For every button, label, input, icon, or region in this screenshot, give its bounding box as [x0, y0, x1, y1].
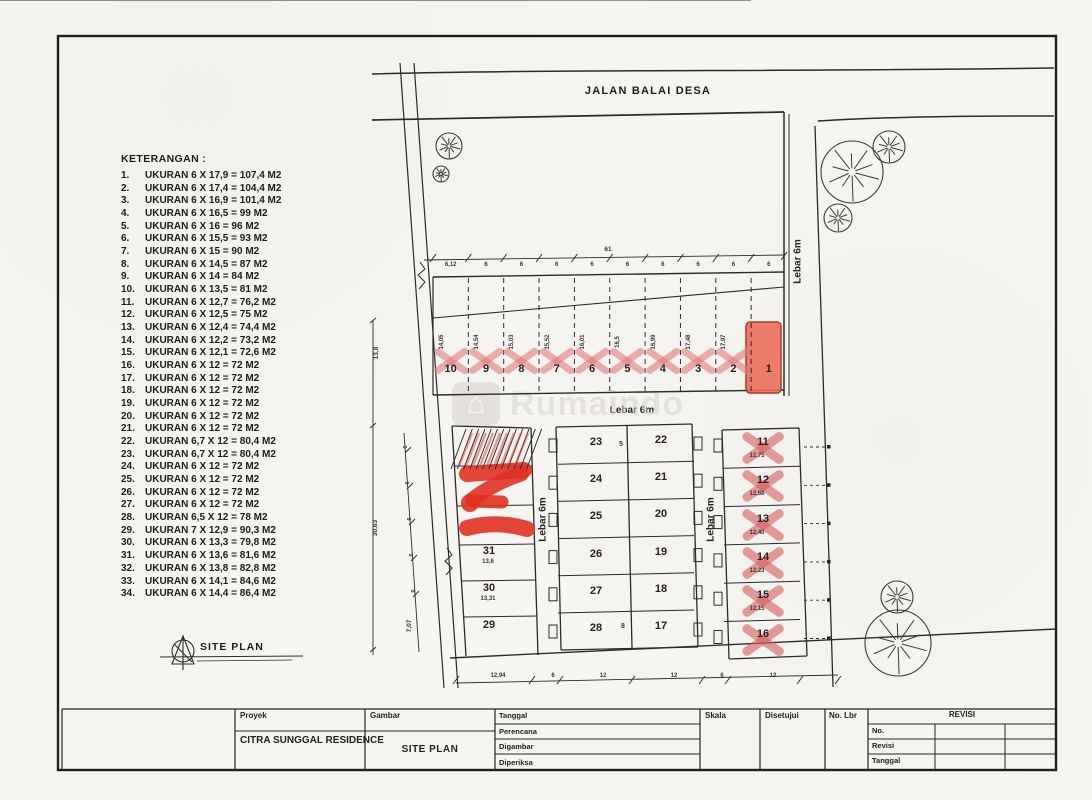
revisi-no-label: No. [872, 726, 884, 735]
legend-item: 22.UKURAN 6,7 X 12 = 80,4 M2 [121, 436, 281, 449]
legend-item: 25.UKURAN 6 X 12 = 72 M2 [121, 474, 281, 487]
legend-item: 33.UKURAN 6 X 14,1 = 84,6 M2 [121, 576, 281, 589]
legend-title: KETERANGAN : [121, 153, 281, 165]
legend-item: 34.UKURAN 6 X 14,4 = 86,4 M2 [121, 588, 281, 601]
legend-item: 28.UKURAN 6,5 X 12 = 78 M2 [121, 512, 281, 525]
legend-item: 8.UKURAN 6 X 14,5 = 87 M2 [121, 259, 281, 272]
legend-item: 10.UKURAN 6 X 13,5 = 81 M2 [121, 284, 281, 297]
diperiksa-row-label: Diperiksa [499, 758, 533, 767]
digambar-row-label: Digambar [499, 742, 534, 751]
legend-item: 7.UKURAN 6 X 15 = 90 M2 [121, 246, 281, 259]
legend-item: 20.UKURAN 6 X 12 = 72 M2 [121, 411, 281, 424]
proyek-value: CITRA SUNGGAL RESIDENCE [240, 735, 360, 748]
disetujui-label: Disetujui [765, 711, 799, 720]
legend-item: 14.UKURAN 6 X 12,2 = 73,2 M2 [121, 335, 281, 348]
legend-item: 5.UKURAN 6 X 16 = 96 M2 [121, 221, 281, 234]
legend-item: 31.UKURAN 6 X 13,6 = 81,6 M2 [121, 550, 281, 563]
legend-item: 23.UKURAN 6,7 X 12 = 80,4 M2 [121, 449, 281, 462]
revisi-header: REVISI [868, 710, 1056, 719]
legend-item: 29.UKURAN 7 X 12,9 = 90,3 M2 [121, 525, 281, 538]
legend-item: 24.UKURAN 6 X 12 = 72 M2 [121, 461, 281, 474]
legend-item: 12.UKURAN 6 X 12,5 = 75 M2 [121, 309, 281, 322]
legend-item: 2.UKURAN 6 X 17,4 = 104,4 M2 [121, 183, 281, 196]
revisi-tanggal-label: Tanggal [872, 756, 900, 765]
legend-item: 17.UKURAN 6 X 12 = 72 M2 [121, 373, 281, 386]
legend-item: 1.UKURAN 6 X 17,9 = 107,4 M2 [121, 170, 281, 183]
legend-item: 6.UKURAN 6 X 15,5 = 93 M2 [121, 233, 281, 246]
legend-item: 4.UKURAN 6 X 16,5 = 99 M2 [121, 208, 281, 221]
legend-item: 27.UKURAN 6 X 12 = 72 M2 [121, 499, 281, 512]
tanggal-row-label: Tanggal [499, 711, 527, 720]
proyek-label: Proyek [240, 711, 267, 720]
gambar-value: SITE PLAN [367, 744, 493, 757]
legend-item: 15.UKURAN 6 X 12,1 = 72,6 M2 [121, 347, 281, 360]
legend-item: 19.UKURAN 6 X 12 = 72 M2 [121, 398, 281, 411]
perencana-row-label: Perencana [499, 727, 537, 736]
legend-item: 30.UKURAN 6 X 13,3 = 79,8 M2 [121, 537, 281, 550]
legend-item: 32.UKURAN 6 X 13,8 = 82,8 M2 [121, 563, 281, 576]
legend-item: 26.UKURAN 6 X 12 = 72 M2 [121, 487, 281, 500]
legend: KETERANGAN : 1.UKURAN 6 X 17,9 = 107,4 M… [121, 153, 281, 601]
legend-item: 11.UKURAN 6 X 12,7 = 76,2 M2 [121, 297, 281, 310]
legend-item: 21.UKURAN 6 X 12 = 72 M2 [121, 423, 281, 436]
skala-label: Skala [705, 711, 726, 720]
legend-item: 18.UKURAN 6 X 12 = 72 M2 [121, 385, 281, 398]
legend-item: 9.UKURAN 6 X 14 = 84 M2 [121, 271, 281, 284]
no-lbr-label: No. Lbr [829, 711, 857, 720]
legend-item: 3.UKURAN 6 X 16,9 = 101,4 M2 [121, 195, 281, 208]
site-plan-sheet: ⌂ Rumaindo [0, 0, 1092, 800]
legend-item: 13.UKURAN 6 X 12,4 = 74,4 M2 [121, 322, 281, 335]
gambar-label: Gambar [370, 711, 400, 720]
legend-item: 16.UKURAN 6 X 12 = 72 M2 [121, 360, 281, 373]
legend-list: 1.UKURAN 6 X 17,9 = 107,4 M22.UKURAN 6 X… [121, 170, 281, 601]
revisi-revisi-label: Revisi [872, 741, 894, 750]
